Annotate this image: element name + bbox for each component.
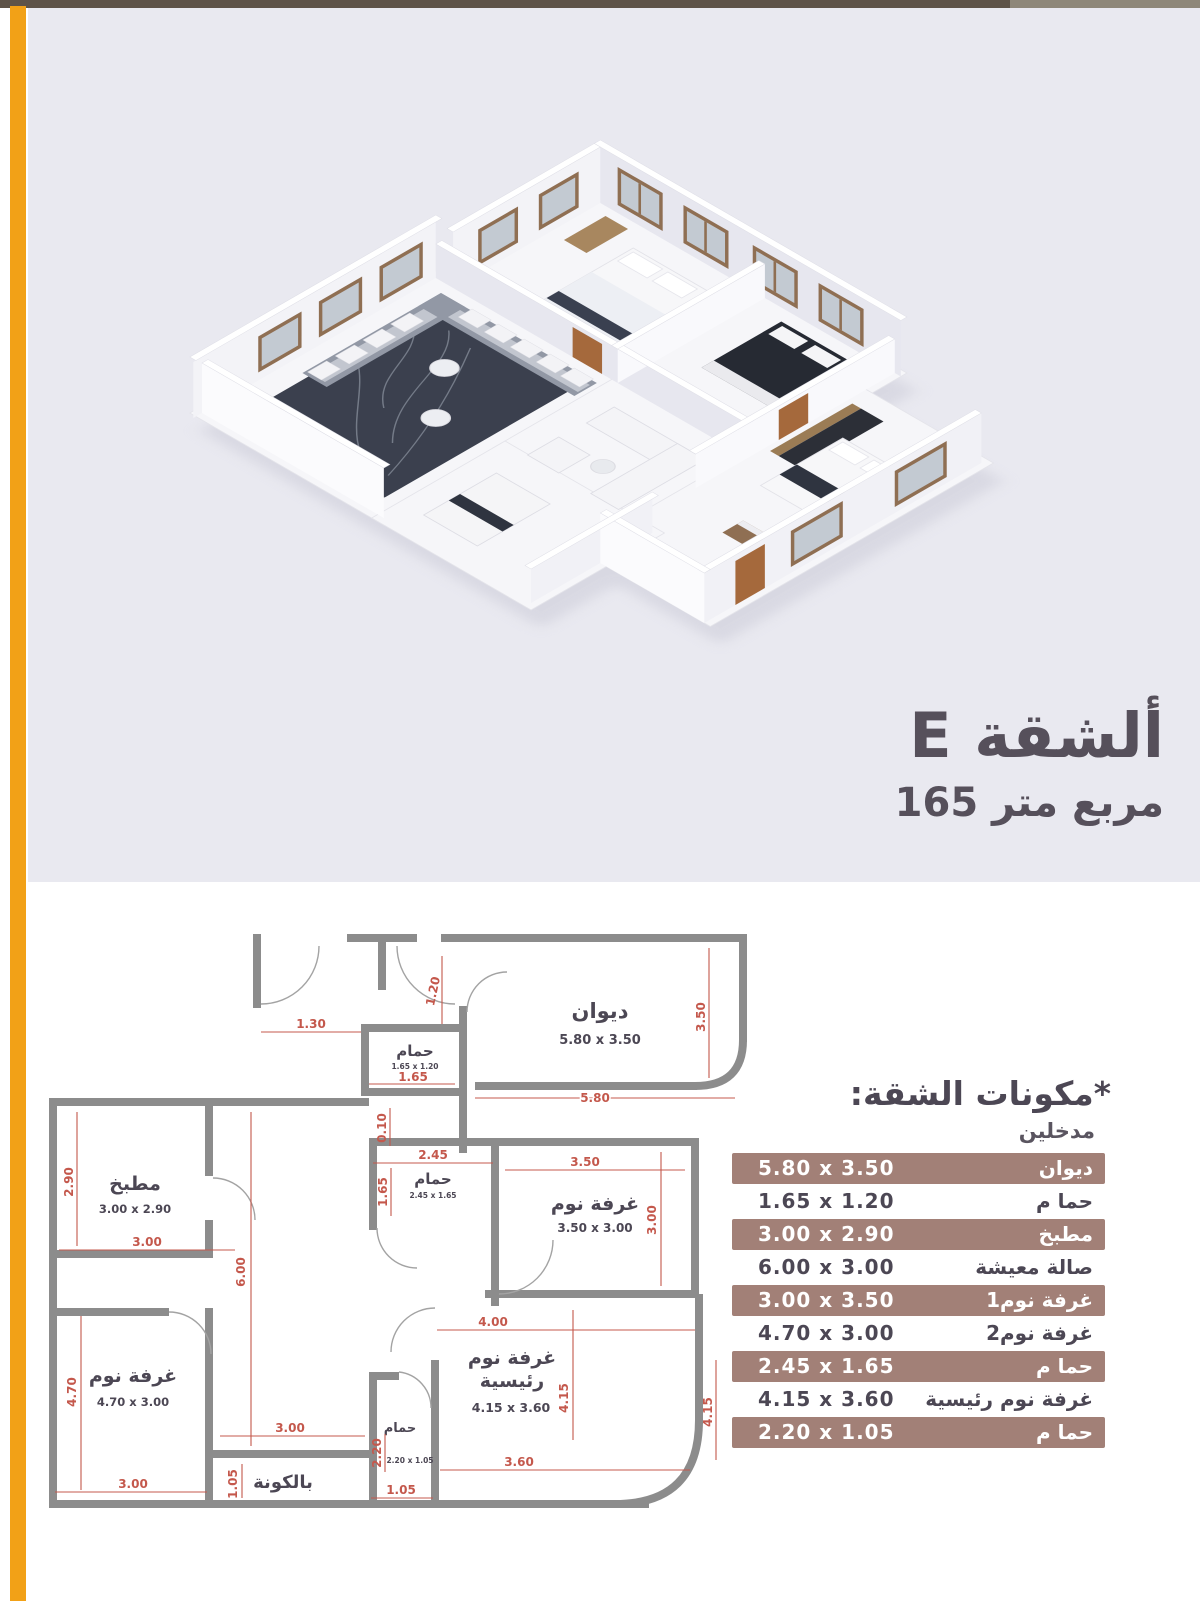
svg-text:2.20: 2.20 — [370, 1438, 384, 1468]
room-name: غرفة نوم رئيسية — [925, 1384, 1105, 1415]
svg-text:3.00: 3.00 — [118, 1477, 148, 1491]
table-row: حما م1.65 x 1.20 — [732, 1186, 1105, 1217]
components-heading: *مكونات الشقة: — [720, 1060, 1115, 1113]
svg-text:3.50: 3.50 — [694, 1002, 708, 1032]
room-dimensions: 3.00 x 3.50 — [732, 1285, 895, 1316]
room-name: غرفة نوم2 — [986, 1318, 1105, 1349]
svg-text:3.00: 3.00 — [275, 1421, 305, 1435]
area-subtitle: مربع متر 165 — [895, 780, 1164, 826]
render-panel: ألشقة E مربع متر 165 — [28, 8, 1200, 882]
room-dimensions: 4.70 x 3.00 — [732, 1318, 895, 1349]
orange-accent-stripe — [10, 6, 26, 1601]
room-dimensions: 6.00 x 3.00 — [732, 1252, 895, 1283]
room-label-bath-mid: حمام — [414, 1170, 452, 1188]
svg-text:4.70: 4.70 — [65, 1377, 79, 1407]
components-table: ديوان5.80 x 3.50حما م1.65 x 1.20مطبخ3.00… — [732, 1153, 1105, 1448]
room-dims-bath-mid: 2.45 x 1.65 — [409, 1191, 456, 1200]
room-dimensions: 2.20 x 1.05 — [732, 1417, 895, 1448]
svg-text:1.65: 1.65 — [376, 1177, 390, 1207]
svg-text:1.30: 1.30 — [296, 1017, 326, 1031]
room-name: حما م — [1036, 1186, 1105, 1217]
room-dimensions: 2.45 x 1.65 — [732, 1351, 895, 1382]
table-row: غرفة نوم24.70 x 3.00 — [732, 1318, 1105, 1349]
svg-text:0.10: 0.10 — [375, 1113, 389, 1143]
room-label-bath-bottom: حمام — [384, 1421, 417, 1436]
table-row: ديوان5.80 x 3.50 — [732, 1153, 1105, 1184]
page-title: ألشقة E — [895, 702, 1164, 770]
table-row: مطبخ3.00 x 2.90 — [732, 1219, 1105, 1250]
room-label-balcony: بالكونة — [253, 1472, 313, 1493]
svg-text:4.15: 4.15 — [701, 1397, 715, 1427]
room-label-master-2: رئيسية — [480, 1370, 544, 1392]
svg-text:1.65: 1.65 — [398, 1070, 428, 1084]
room-dims-kitchen: 3.00 x 2.90 — [99, 1202, 171, 1216]
table-row: حما م2.20 x 1.05 — [732, 1417, 1105, 1448]
room-name: مطبخ — [1039, 1219, 1105, 1250]
room-dimensions: 4.15 x 3.60 — [732, 1384, 895, 1415]
svg-text:4.15: 4.15 — [557, 1383, 571, 1413]
room-dimensions: 3.00 x 2.90 — [732, 1219, 895, 1250]
room-label-bath-top: حمام — [396, 1042, 434, 1060]
room-label-bed1: غرفة نوم — [551, 1193, 639, 1215]
svg-text:1.05: 1.05 — [226, 1469, 240, 1499]
room-label-diwan: ديوان — [572, 999, 629, 1023]
room-name: غرفة نوم1 — [986, 1285, 1105, 1316]
title-block: ألشقة E مربع متر 165 — [895, 702, 1164, 826]
room-label-master-1: غرفة نوم — [468, 1347, 556, 1369]
room-name: ديوان — [1039, 1153, 1105, 1184]
table-row: غرفة نوم رئيسية4.15 x 3.60 — [732, 1384, 1105, 1415]
room-dims-diwan: 5.80 x 3.50 — [559, 1033, 641, 1048]
svg-text:4.00: 4.00 — [478, 1315, 508, 1329]
room-dimensions: 1.65 x 1.20 — [732, 1186, 895, 1217]
table-row: غرفة نوم13.00 x 3.50 — [732, 1285, 1105, 1316]
room-dims-master: 4.15 x 3.60 — [472, 1400, 551, 1415]
room-name: حما م — [1036, 1351, 1105, 1382]
top-bar-light-segment — [1010, 0, 1200, 8]
svg-text:3.00: 3.00 — [645, 1205, 659, 1235]
svg-text:6.00: 6.00 — [234, 1257, 248, 1287]
floor-plan-2d: ديوان 5.80 x 3.50 حمام 1.65 x 1.20 مطبخ … — [35, 920, 765, 1520]
svg-text:3.00: 3.00 — [132, 1235, 162, 1249]
room-dims-bath-bottom: 2.20 x 1.05 — [386, 1456, 433, 1465]
svg-text:2.90: 2.90 — [62, 1167, 76, 1197]
svg-text:1.05: 1.05 — [386, 1483, 416, 1497]
room-dims-bed1: 3.50 x 3.00 — [557, 1221, 632, 1235]
room-dims-bed2: 4.70 x 3.00 — [97, 1395, 169, 1409]
room-dimensions: 5.80 x 3.50 — [732, 1153, 895, 1184]
components-section: *مكونات الشقة: مدخلين ديوان5.80 x 3.50حم… — [720, 1060, 1115, 1450]
svg-text:3.60: 3.60 — [504, 1455, 534, 1469]
room-name: حما م — [1036, 1417, 1105, 1448]
svg-text:2.45: 2.45 — [418, 1148, 448, 1162]
components-subheading: مدخلين — [720, 1113, 1115, 1143]
svg-text:3.50: 3.50 — [570, 1155, 600, 1169]
table-row: حما م2.45 x 1.65 — [732, 1351, 1105, 1382]
room-name: صالة معيشة — [975, 1252, 1105, 1283]
room-label-bed2: غرفة نوم — [89, 1365, 177, 1387]
table-row: صالة معيشة6.00 x 3.00 — [732, 1252, 1105, 1283]
svg-text:5.80: 5.80 — [580, 1091, 610, 1105]
room-label-kitchen: مطبخ — [109, 1173, 161, 1195]
